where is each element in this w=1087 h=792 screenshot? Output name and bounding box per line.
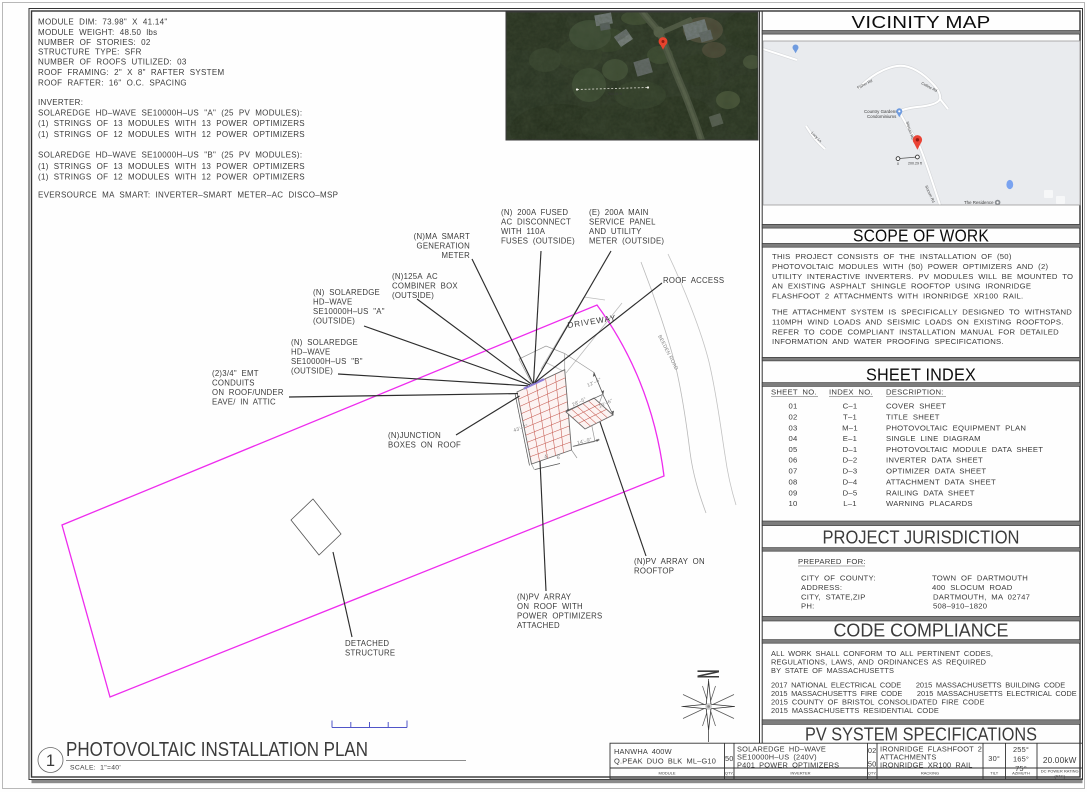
svg-text:COVER SHEET: COVER SHEET (886, 402, 946, 411)
svg-text:HD–WAVE: HD–WAVE (291, 348, 330, 357)
svg-text:200.29 ft: 200.29 ft (908, 162, 922, 166)
svg-text:03: 03 (788, 423, 797, 432)
svg-text:PHOTOVOLTAIC MODULES WITH (: PHOTOVOLTAIC MODULES WITH (50) POWER OPT… (772, 262, 1048, 271)
svg-text:(2)3/4" EMT: (2)3/4" EMT (212, 369, 259, 378)
svg-text:SCALE: 1"=40': SCALE: 1"=40' (70, 765, 121, 772)
svg-text:METER: METER (441, 251, 470, 260)
svg-text:1: 1 (46, 752, 55, 770)
svg-text:02: 02 (868, 746, 877, 755)
svg-text:METER (OUTSIDE): METER (OUTSIDE) (589, 237, 664, 246)
svg-text:FLASHFOOT 2 ATTACHMENTS WIT: FLASHFOOT 2 ATTACHMENTS WITH IRONRIDGE X… (772, 292, 1023, 301)
svg-text:STRUCTURE: STRUCTURE (345, 649, 395, 658)
svg-text:L–1: L–1 (843, 499, 857, 508)
svg-text:ON ROOF WITH: ON ROOF WITH (517, 602, 583, 611)
svg-text:ROOF RAFTER: 16" O.C. SPACING: ROOF RAFTER: 16" O.C. SPACING (38, 78, 187, 87)
svg-text:(1) STRINGS OF 12 MODULES WITH: (1) STRINGS OF 12 MODULES WITH 12 POWER … (38, 173, 305, 182)
svg-text:(N)PV ARRAY ON: (N)PV ARRAY ON (634, 557, 705, 566)
svg-text:(N)JUNCTION: (N)JUNCTION (388, 431, 441, 440)
svg-text:SERVICE PANEL: SERVICE PANEL (589, 218, 656, 227)
svg-text:09: 09 (788, 488, 797, 497)
svg-text:COMBINER BOX: COMBINER BOX (392, 282, 458, 291)
svg-text:THIS PROJECT CONSISTS OF T: THIS PROJECT CONSISTS OF THE INSTALLATIO… (772, 252, 1012, 261)
svg-text:EAVE/ IN ATTIC: EAVE/ IN ATTIC (212, 398, 276, 407)
svg-text:MODULE WEIGHT: 48.50 lbs: MODULE WEIGHT: 48.50 lbs (38, 28, 157, 37)
svg-text:AND UTILITY: AND UTILITY (589, 227, 642, 236)
svg-text:RACKING: RACKING (921, 771, 939, 776)
svg-text:M–1: M–1 (842, 423, 858, 432)
svg-text:DARTMOUTH, MA 02747: DARTMOUTH, MA 02747 (933, 592, 1030, 601)
svg-text:SINGLE LINE DIAGRAM: SINGLE LINE DIAGRAM (886, 434, 981, 443)
svg-text:165°: 165° (1013, 755, 1029, 764)
svg-text:SE10000H–US "B": SE10000H–US "B" (291, 357, 363, 366)
svg-text:IRONRIDGE XR100 RAIL: IRONRIDGE XR100 RAIL (880, 760, 973, 769)
svg-text:DETACHED: DETACHED (345, 639, 389, 648)
svg-text:04: 04 (788, 434, 798, 443)
svg-text:(OUTSIDE): (OUTSIDE) (291, 367, 333, 376)
svg-text:(N) SOLAREDGE: (N) SOLAREDGE (291, 338, 358, 347)
svg-text:D–1: D–1 (843, 445, 858, 454)
svg-text:D–5: D–5 (843, 488, 858, 497)
svg-text:(1) STRINGS OF 13 MODULES WITH: (1) STRINGS OF 13 MODULES WITH 13 POWER … (38, 119, 305, 128)
svg-text:ROOFTOP: ROOFTOP (634, 567, 674, 576)
svg-text:(N) 200A FUSED: (N) 200A FUSED (501, 208, 568, 217)
svg-text:PH:: PH: (801, 602, 815, 611)
svg-text:(STC): (STC) (1054, 774, 1065, 779)
svg-text:RAILING DATA SHEET: RAILING DATA SHEET (886, 488, 975, 497)
svg-text:CODE COMPLIANCE: CODE COMPLIANCE (834, 620, 1009, 641)
svg-text:ATTACHED: ATTACHED (517, 621, 560, 630)
svg-text:FUSES (OUTSIDE): FUSES (OUTSIDE) (501, 237, 575, 246)
svg-text:ROOF FRAMING: 2" X 8" RAFTER: ROOF FRAMING: 2" X 8" RAFTER SYSTEM (38, 68, 224, 77)
svg-text:(N)MA SMART: (N)MA SMART (414, 232, 470, 241)
svg-text:E–1: E–1 (843, 434, 857, 443)
svg-text:10: 10 (788, 499, 797, 508)
svg-text:PHOTOVOLTAIC EQUIPMENT PLAN: PHOTOVOLTAIC EQUIPMENT PLAN (886, 423, 1026, 432)
svg-text:INFORMATION AND WATER PROOF: INFORMATION AND WATER PROOFING SPECIFICA… (772, 337, 1004, 346)
svg-text:07: 07 (788, 466, 797, 475)
svg-text:P401 POWER OPTIMIZERS: P401 POWER OPTIMIZERS (737, 760, 839, 769)
svg-text:PREPARED FOR:: PREPARED FOR: (798, 557, 866, 566)
svg-text:SE10000H–US "A": SE10000H–US "A" (313, 307, 385, 316)
svg-text:AZIMUTH: AZIMUTH (1012, 771, 1030, 776)
svg-text:06: 06 (788, 456, 797, 465)
svg-text:(N) SOLAREDGE: (N) SOLAREDGE (313, 288, 380, 297)
svg-text:CITY OF COUNTY:: CITY OF COUNTY: (801, 574, 876, 583)
svg-text:05: 05 (788, 445, 797, 454)
svg-text:264.91 ft: 264.91 ft (608, 92, 622, 96)
svg-text:(1) STRINGS OF 13 MODULES WITH: (1) STRINGS OF 13 MODULES WITH 13 POWER … (38, 162, 305, 171)
svg-text:(OUTSIDE): (OUTSIDE) (392, 291, 434, 300)
svg-text:CITY, STATE,ZIP: CITY, STATE,ZIP (801, 592, 866, 601)
svg-text:50: 50 (725, 754, 734, 763)
svg-text:(N)PV ARRAY: (N)PV ARRAY (517, 593, 572, 602)
svg-text:ADDRESS:: ADDRESS: (801, 583, 842, 592)
svg-text:AN EXISTING ASPHALT SHINGLE: AN EXISTING ASPHALT SHINGLE ROOFTOP USIN… (772, 282, 1031, 291)
svg-text:ROOF ACCESS: ROOF ACCESS (663, 276, 724, 285)
svg-text:AC DISCONNECT: AC DISCONNECT (501, 218, 571, 227)
svg-text:NUMBER OF STORIES: 02: NUMBER OF STORIES: 02 (38, 38, 151, 47)
svg-text:08: 08 (788, 478, 797, 487)
svg-text:HD–WAVE: HD–WAVE (313, 298, 352, 307)
svg-text:GENERATION: GENERATION (417, 242, 470, 251)
svg-text:D–4: D–4 (843, 478, 858, 487)
svg-text:2015 MASSACHUSETTS RESIDENTI: 2015 MASSACHUSETTS RESIDENTIAL CODE (771, 706, 939, 715)
svg-text:UTILITY INTERACTIVE INVERTER: UTILITY INTERACTIVE INVERTERS. PV MODULE… (772, 272, 1073, 281)
svg-text:20.00kW: 20.00kW (1043, 756, 1077, 765)
svg-text:(N)125A AC: (N)125A AC (392, 272, 438, 281)
svg-text:INVERTER:: INVERTER: (38, 98, 83, 107)
svg-text:D–2: D–2 (843, 456, 858, 465)
svg-text:C–1: C–1 (843, 402, 858, 411)
svg-text:WITH 110A: WITH 110A (501, 227, 546, 236)
svg-text:POWER OPTIMIZERS: POWER OPTIMIZERS (517, 612, 602, 621)
svg-text:STRUCTURE TYPE: SFR: STRUCTURE TYPE: SFR (38, 48, 142, 57)
svg-text:SCOPE OF WORK: SCOPE OF WORK (853, 226, 989, 246)
svg-text:50: 50 (868, 760, 877, 769)
svg-text:PHOTOVOLTAIC INSTALLATION PLAN: PHOTOVOLTAIC INSTALLATION PLAN (66, 739, 368, 761)
svg-text:INVERTER DATA SHEET: INVERTER DATA SHEET (886, 456, 983, 465)
svg-text:255°: 255° (1013, 745, 1029, 754)
svg-text:SOLAREDGE HD–WAVE SE10000H–US: SOLAREDGE HD–WAVE SE10000H–US "B" (25 PV… (38, 150, 302, 159)
svg-text:DESCRIPTION:: DESCRIPTION: (886, 388, 944, 397)
svg-text:PHOTOVOLTAIC MODULE DATA SH: PHOTOVOLTAIC MODULE DATA SHEET (886, 445, 1043, 454)
svg-text:MODULE DIM: 73.98" X 41.14": MODULE DIM: 73.98" X 41.14" (38, 18, 168, 27)
svg-text:MODULE: MODULE (658, 771, 675, 776)
svg-text:(1) STRINGS OF 12 MODULES WITH: (1) STRINGS OF 12 MODULES WITH 12 POWER … (38, 130, 305, 139)
svg-text:SHEET INDEX: SHEET INDEX (866, 365, 976, 385)
svg-text:PV SYSTEM SPECIFICATIONS: PV SYSTEM SPECIFICATIONS (805, 724, 1037, 745)
svg-text:400 SLOCUM ROAD: 400 SLOCUM ROAD (932, 583, 1013, 592)
svg-text:PROJECT JURISDICTION: PROJECT JURISDICTION (823, 527, 1020, 548)
svg-text:N: N (690, 670, 726, 679)
svg-text:30°: 30° (988, 754, 1000, 763)
svg-text:ATTACHMENT DATA SHEET: ATTACHMENT DATA SHEET (886, 478, 996, 487)
svg-text:110MPH WIND LOADS AND SEIS: 110MPH WIND LOADS AND SEISMIC LOADS ON E… (772, 317, 1064, 326)
svg-text:(OUTSIDE): (OUTSIDE) (313, 317, 355, 326)
svg-text:BOXES ON ROOF: BOXES ON ROOF (388, 441, 461, 450)
svg-text:T–1: T–1 (843, 412, 857, 421)
svg-text:D–3: D–3 (843, 466, 858, 475)
svg-text:0: 0 (897, 162, 899, 166)
svg-text:(E) 200A MAIN: (E) 200A MAIN (589, 208, 649, 217)
svg-text:CONDUITS: CONDUITS (212, 379, 255, 388)
svg-text:EVERSOURCE MA SMART: INVERTER–: EVERSOURCE MA SMART: INVERTER–SMART METE… (38, 191, 338, 200)
svg-text:QTY.: QTY. (868, 771, 877, 776)
svg-text:Condominiums: Condominiums (867, 114, 897, 119)
svg-text:OPTIMIZER DATA SHEET: OPTIMIZER DATA SHEET (886, 466, 986, 475)
svg-text:Q.PEAK DUO BLK ML–G10: Q.PEAK DUO BLK ML–G10 (614, 757, 716, 766)
svg-text:QTY.: QTY. (725, 771, 734, 776)
svg-text:WARNING PLACARDS: WARNING PLACARDS (886, 499, 973, 508)
svg-text:INVERTER: INVERTER (790, 771, 810, 776)
svg-text:ON ROOF/UNDER: ON ROOF/UNDER (212, 388, 284, 397)
svg-text:SOLAREDGE HD–WAVE SE10000H–US: SOLAREDGE HD–WAVE SE10000H–US "A" (25 PV… (38, 109, 302, 118)
svg-text:HANWHA 400W: HANWHA 400W (614, 747, 672, 756)
svg-text:508–910–1820: 508–910–1820 (933, 602, 987, 611)
svg-text:INDEX NO.: INDEX NO. (829, 388, 873, 397)
svg-text:VICINITY MAP: VICINITY MAP (852, 12, 991, 32)
svg-text:TILT: TILT (990, 771, 998, 776)
svg-text:02: 02 (788, 412, 797, 421)
svg-text:THE ATTACHMENT SYSTEM IS S: THE ATTACHMENT SYSTEM IS SPECIFICALLY DE… (772, 308, 1072, 317)
svg-text:01: 01 (788, 402, 797, 411)
svg-text:TOWN OF DARTMOUTH: TOWN OF DARTMOUTH (932, 574, 1028, 583)
svg-text:TITLE SHEET: TITLE SHEET (886, 412, 940, 421)
svg-text:SHEET NO.: SHEET NO. (771, 388, 817, 397)
svg-text:NUMBER OF ROOFS UTILIZED: 03: NUMBER OF ROOFS UTILIZED: 03 (38, 58, 187, 67)
svg-text:BY STATE OF MASSACHUSETTS: BY STATE OF MASSACHUSETTS (771, 666, 894, 675)
svg-text:REFER TO CODE COMPLIANT IN: REFER TO CODE COMPLIANT INSTALLATION MAN… (772, 327, 1059, 336)
